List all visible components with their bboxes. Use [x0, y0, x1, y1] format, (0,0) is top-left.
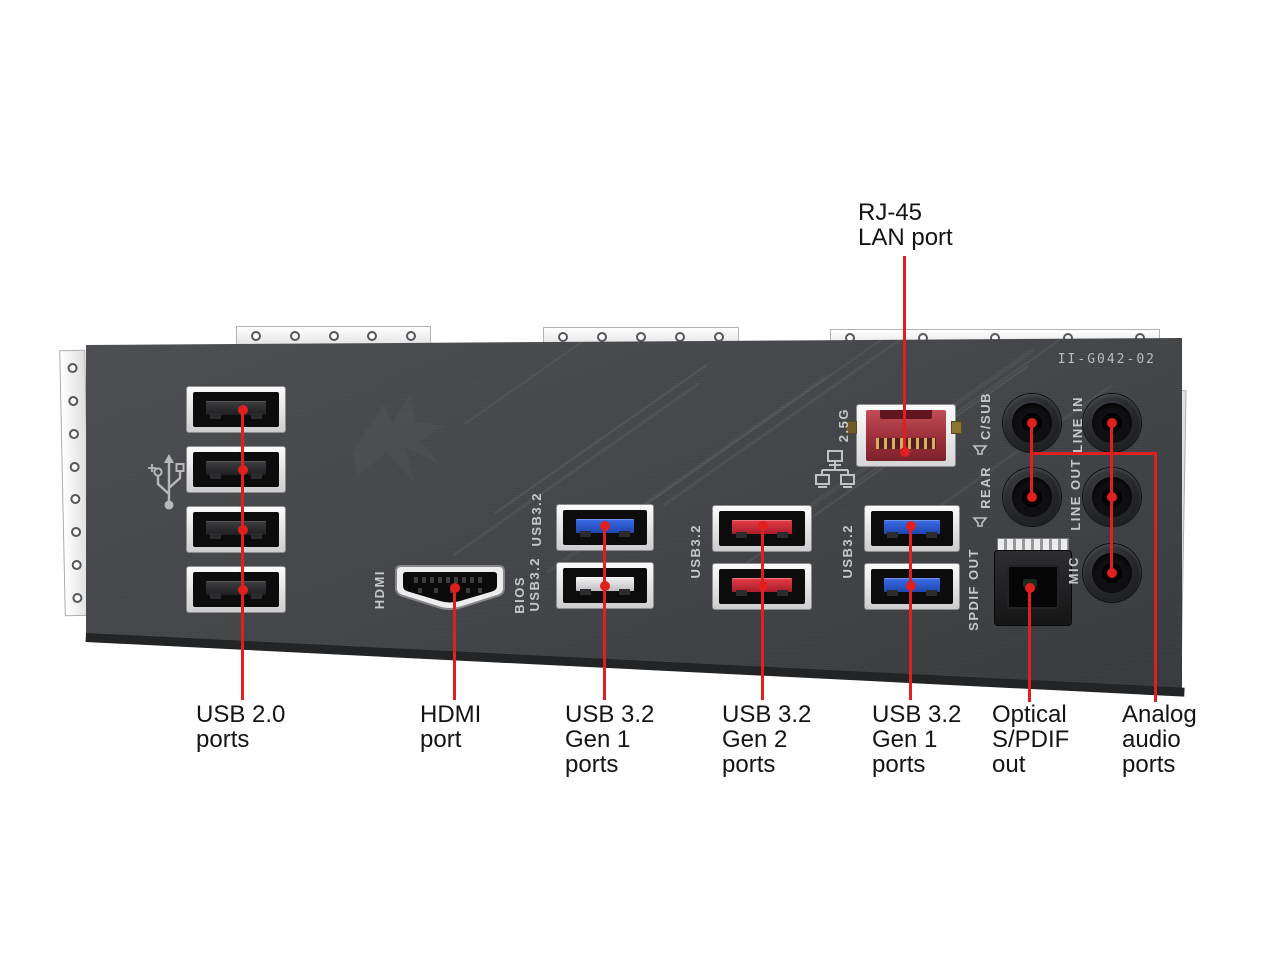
rj45-lan-port	[856, 404, 956, 467]
board-model-code: II-G042-02	[1058, 352, 1156, 367]
silkscreen-bios-usb32-label: USB3.2	[527, 557, 542, 612]
callout-line-rj45	[903, 256, 906, 454]
callout-line-usb32-gen1-left	[603, 524, 606, 700]
silkscreen-hdmi-label: HDMI	[372, 570, 387, 609]
screw-hole	[70, 461, 80, 471]
callout-dot	[906, 581, 916, 591]
speaker-icon	[972, 440, 988, 456]
silkscreen-mic-label: MIC	[1066, 556, 1081, 584]
callout-dot	[1025, 583, 1035, 593]
callout-dot	[1107, 418, 1117, 428]
callout-dot	[1027, 418, 1037, 428]
usb-icon	[146, 450, 192, 512]
callout-label-spdif: Optical S/PDIF out	[992, 702, 1069, 777]
callout-line-usb2	[241, 406, 244, 700]
callout-dot	[238, 525, 248, 535]
screw-hole	[406, 331, 416, 341]
usb2-port-2	[186, 446, 286, 493]
screw-hole	[329, 331, 339, 341]
callout-line-spdif	[1028, 586, 1031, 702]
callout-label-usb2: USB 2.0 ports	[196, 702, 285, 752]
callout-dot	[238, 585, 248, 595]
callout-line-audio-down	[1154, 452, 1157, 702]
callout-dot	[238, 405, 248, 415]
screw-hole	[597, 332, 607, 342]
callout-dot	[238, 465, 248, 475]
lan-led-window	[951, 421, 962, 434]
callout-dot	[1107, 568, 1117, 578]
callout-line-usb32-gen2	[761, 524, 764, 700]
screw-hole	[70, 494, 80, 504]
callout-label-hdmi: HDMI port	[420, 702, 481, 752]
callout-dot	[600, 581, 610, 591]
callout-dot	[906, 521, 916, 531]
callout-dot	[1027, 492, 1037, 502]
annotated-io-panel-figure: II-G042-02	[0, 0, 1280, 960]
silkscreen-usb32-label: USB3.2	[840, 524, 855, 579]
callout-label-analog-audio: Analog audio ports	[1122, 702, 1197, 777]
silkscreen-usb32-label: USB3.2	[529, 492, 544, 547]
optical-spdif-port	[994, 538, 1072, 626]
silkscreen-line-in-label: LINE IN	[1070, 396, 1085, 453]
callout-label-usb32-gen1-left: USB 3.2 Gen 1 ports	[565, 702, 654, 777]
silkscreen-lan-speed-label: 2.5G	[836, 408, 851, 442]
aorus-falcon-logo	[344, 390, 464, 490]
screw-hole	[367, 331, 377, 341]
screw-hole	[636, 332, 646, 342]
screw-hole	[290, 331, 300, 341]
screw-hole	[72, 560, 82, 570]
callout-label-usb32-gen1-right: USB 3.2 Gen 1 ports	[872, 702, 961, 777]
callout-dot	[758, 521, 768, 531]
silkscreen-csub-label: C/SUB	[978, 392, 993, 440]
silkscreen-spdif-label: SPDIF OUT	[966, 548, 981, 631]
silkscreen-line-out-label: LINE OUT	[1068, 458, 1083, 531]
callout-label-usb32-gen2: USB 3.2 Gen 2 ports	[722, 702, 811, 777]
screw-hole	[69, 429, 79, 439]
speaker-icon	[972, 512, 988, 528]
callout-line-usb32-gen1-right	[909, 524, 912, 700]
screw-hole	[68, 396, 78, 406]
silkscreen-usb32-label: USB3.2	[688, 524, 703, 579]
callout-dot	[758, 581, 768, 591]
usb2-port-3	[186, 506, 286, 553]
silkscreen-rear-label: REAR	[978, 466, 993, 509]
callout-line-audio-horizontal	[1030, 452, 1157, 455]
usb2-port-4	[186, 566, 286, 613]
usb2-port-1	[186, 386, 286, 433]
callout-dot	[450, 583, 460, 593]
silkscreen-bios-label: BIOS	[512, 576, 527, 614]
lan-icon	[814, 448, 856, 498]
screw-hole	[72, 593, 82, 603]
screw-hole	[71, 527, 81, 537]
callout-dot	[1107, 492, 1117, 502]
callout-line-hdmi	[453, 586, 456, 700]
screw-hole	[67, 363, 77, 373]
screw-hole	[675, 332, 685, 342]
callout-label-rj45: RJ-45 LAN port	[858, 200, 953, 250]
callout-line-audio-left	[1030, 421, 1033, 497]
callout-dot	[900, 447, 910, 457]
callout-dot	[600, 521, 610, 531]
screw-hole	[714, 332, 724, 342]
screw-hole	[558, 332, 568, 342]
screw-hole	[251, 331, 261, 341]
